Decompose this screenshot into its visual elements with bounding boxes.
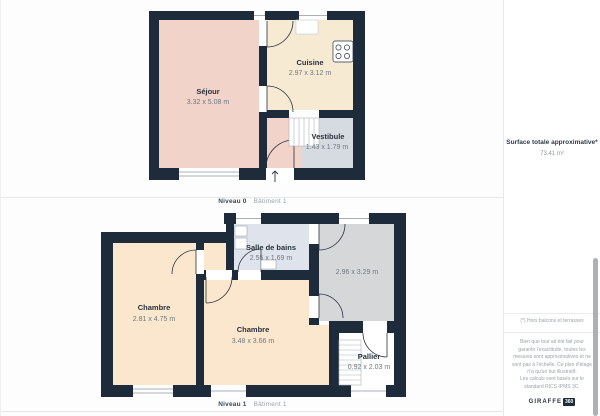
kitchen-counter-icon [296, 20, 318, 34]
toilet-icon [235, 226, 247, 236]
room-label-vestibule: Vestibule [312, 132, 345, 141]
room-dims-pallier: 0.92 x 2.03 m [348, 364, 391, 371]
room-dims-chambre-middle: 3.48 x 3.66 m [232, 338, 275, 345]
room-label-pallier: Pallier [358, 352, 381, 361]
room-chambre-left-area [113, 243, 196, 385]
building-label-0: Bâtiment 1 [254, 198, 287, 205]
stove-icon [333, 41, 353, 62]
room-label-salle-de-bains: Salle de bains [246, 243, 296, 252]
giraffe360-logo: GIRAFFE360 [504, 393, 600, 411]
brand-name-text: GIRAFFE [529, 399, 562, 405]
calculation-note: Les calculs sont basés sur le standard R… [504, 376, 600, 391]
info-sidebar: Surface totale approximative* 73.41 m² (… [503, 0, 600, 416]
surface-total-title: Surface totale approximative* [504, 139, 600, 146]
surface-total-value: 73.41 m² [504, 151, 600, 157]
room-dims-cuisine: 2.97 x 3.12 m [289, 70, 332, 77]
building-label-1: Bâtiment 1 [254, 401, 287, 408]
room-label-cuisine: Cuisine [296, 58, 323, 67]
scrollbar-thumb[interactable] [593, 258, 598, 416]
floorplan-level-0: Séjour 3.32 x 5.08 m Cuisine 2.97 x 3.12… [149, 8, 365, 184]
room-dims-sejour: 3.32 x 5.08 m [187, 99, 230, 106]
floorplan-caption-level-0: Niveau 0 Bâtiment 1 [1, 198, 504, 205]
room-label-sejour: Séjour [196, 87, 219, 96]
floorplan-level-1: Chambre 2.81 x 4.75 m Chambre 3.48 x 3.6… [101, 210, 406, 400]
floorplan-viewer: Séjour 3.32 x 5.08 m Cuisine 2.97 x 3.12… [0, 0, 600, 416]
sidebar-divider-1 [504, 313, 600, 314]
level-1-label: Niveau 1 [218, 401, 246, 408]
stairs-icon-level-1 [339, 340, 361, 385]
level-0-label: Niveau 0 [218, 198, 246, 205]
room-dims-chambre-left: 2.81 x 4.75 m [133, 316, 176, 323]
room-label-chambre-left: Chambre [138, 303, 171, 312]
floorplan-caption-level-1: Niveau 1 Bâtiment 1 [1, 401, 504, 408]
disclaimer-text: Bien que tout ait été fait pour garantir… [504, 339, 600, 377]
room-dims-vestibule: 1.43 x 1.79 m [306, 144, 349, 151]
page-divider-2 [1, 411, 504, 412]
room-dims-salle-de-bains: 2.55 x 1.69 m [250, 255, 293, 262]
surface-footnote: (*) Hors balcons et terrasses [504, 318, 600, 326]
plan-pages-area: Séjour 3.32 x 5.08 m Cuisine 2.97 x 3.12… [0, 0, 504, 416]
room-label-chambre-middle: Chambre [237, 325, 270, 334]
sidebar-divider-2 [504, 332, 600, 333]
brand-suffix-badge: 360 [563, 398, 575, 406]
room-dims-unnamed: 2.96 x 3.29 m [336, 269, 379, 276]
